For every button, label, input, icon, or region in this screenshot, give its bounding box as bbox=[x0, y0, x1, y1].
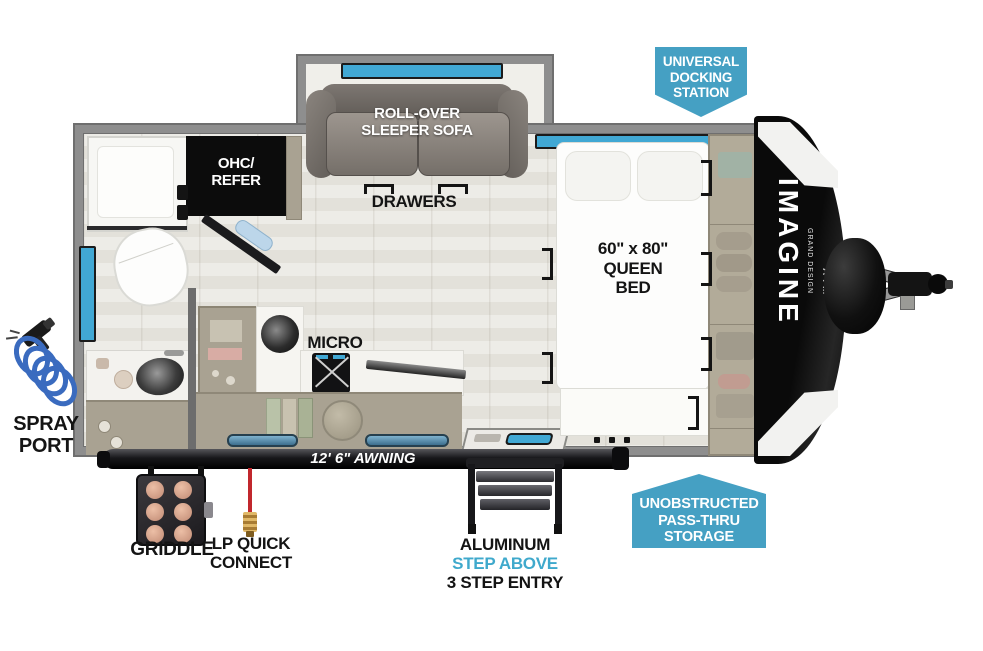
step-tread-2 bbox=[478, 485, 552, 496]
rv-floorplan-diagram: ROLL-OVER SLEEPER SOFA DRAWERS OHC/ REFE… bbox=[0, 0, 983, 651]
washer bbox=[256, 306, 304, 402]
cutting-board-2 bbox=[282, 398, 297, 438]
step-material-label: ALUMINUM bbox=[430, 536, 580, 555]
pantry-dot-2 bbox=[226, 376, 235, 385]
drawers-label: DRAWERS bbox=[364, 193, 464, 212]
vanity-knob-1 bbox=[98, 420, 111, 433]
sofa-label: ROLL-OVER SLEEPER SOFA bbox=[314, 106, 520, 139]
step-tread-1 bbox=[476, 471, 554, 482]
steps-foot-right bbox=[554, 524, 562, 534]
queen-bed: 60" x 80" QUEEN BED bbox=[556, 142, 710, 390]
toilet-seam bbox=[119, 243, 174, 264]
refer-hinge-bottom bbox=[177, 205, 188, 220]
pillow-left bbox=[565, 151, 631, 201]
steps-rail-left bbox=[468, 464, 475, 526]
cutting-board-3 bbox=[298, 398, 313, 438]
brand-manufacturer-text: GRAND DESIGN bbox=[806, 228, 813, 324]
awning-endcap-right bbox=[612, 447, 629, 470]
spray-port-icon bbox=[4, 316, 90, 414]
spray-port-label: SPRAY PORT bbox=[0, 413, 92, 457]
griddle-burner-4 bbox=[174, 503, 192, 521]
wardrobe-shoes-red bbox=[718, 374, 750, 389]
wardrobe-shelf-2 bbox=[710, 324, 760, 325]
wardrobe-shoes-3 bbox=[716, 276, 752, 292]
kitchen-sink bbox=[322, 400, 363, 441]
step-entry-label: 3 STEP ENTRY bbox=[430, 574, 580, 593]
griddle-side-tab bbox=[204, 502, 213, 518]
wardrobe-shoes-1 bbox=[716, 232, 752, 250]
floor-dot-2 bbox=[609, 437, 615, 443]
vanity-bowl bbox=[114, 370, 133, 389]
wardrobe-bin bbox=[716, 332, 754, 360]
underbed-drawer-handle bbox=[688, 396, 699, 430]
wardrobe-handle-3 bbox=[701, 337, 712, 371]
pantry-screen bbox=[210, 320, 242, 342]
entry-door-panel bbox=[474, 434, 502, 442]
wardrobe-mat bbox=[718, 152, 752, 178]
stove-accent-2 bbox=[333, 355, 345, 359]
wardrobe-handle-2 bbox=[701, 252, 712, 286]
washer-door bbox=[261, 315, 299, 353]
refer-hinge-top bbox=[177, 185, 188, 200]
lp-quick-connect-label: LP QUICK CONNECT bbox=[196, 535, 306, 572]
vanity-faucet bbox=[164, 350, 184, 356]
entry-door-window bbox=[505, 433, 554, 445]
wardrobe-bag bbox=[716, 394, 754, 418]
hitch-coupler bbox=[888, 272, 932, 296]
pantry-dot-1 bbox=[212, 370, 219, 377]
pantry-pink-panel bbox=[208, 348, 242, 360]
wardrobe-shoes-2 bbox=[716, 254, 752, 272]
pass-thru-storage-badge: UNOBSTRUCTED PASS-THRU STORAGE bbox=[632, 474, 766, 548]
shower-pan bbox=[97, 146, 174, 218]
cabinet-glass-insert-1 bbox=[227, 434, 298, 447]
refer-side-panel bbox=[286, 136, 302, 220]
docking-station-badge: UNIVERSAL DOCKING STATION bbox=[655, 47, 747, 117]
vanity-soap-dish bbox=[96, 358, 109, 369]
cabinet-glass-insert-2 bbox=[365, 434, 449, 447]
ohc-refer-label: OHC/ REFER bbox=[186, 156, 286, 189]
lp-line bbox=[248, 468, 252, 514]
brand-model-text: IMAGINE bbox=[772, 178, 804, 378]
steps-rail-right bbox=[555, 464, 562, 526]
wardrobe-handle-1 bbox=[701, 160, 712, 196]
vanity-knob-2 bbox=[110, 436, 123, 449]
griddle-burner-3 bbox=[146, 503, 164, 521]
bath-kitchen-wall bbox=[188, 288, 196, 455]
cutting-board-1 bbox=[266, 398, 281, 438]
floor-dot-3 bbox=[624, 437, 630, 443]
propane-cover bbox=[824, 238, 886, 334]
lp-connector bbox=[243, 512, 257, 532]
hitch-coupler-tip bbox=[945, 280, 953, 289]
shower bbox=[87, 136, 188, 232]
bed-handle-upper bbox=[542, 248, 553, 280]
sleeper-sofa: ROLL-OVER SLEEPER SOFA bbox=[314, 84, 520, 190]
pillow-right bbox=[637, 151, 703, 201]
step-tread-3 bbox=[480, 499, 550, 510]
griddle-burner-2 bbox=[174, 481, 192, 499]
floor-dot-1 bbox=[594, 437, 600, 443]
steps-top-rail bbox=[466, 458, 564, 468]
step-feature-label: STEP ABOVE bbox=[430, 555, 580, 574]
awning-endcap-left bbox=[97, 451, 110, 468]
stove bbox=[312, 353, 350, 393]
entry-steps bbox=[466, 458, 564, 534]
slideout-window bbox=[341, 63, 503, 79]
bed-label: 60" x 80" QUEEN BED bbox=[563, 239, 703, 298]
vanity-cabinet bbox=[86, 400, 190, 455]
griddle-burner-1 bbox=[146, 481, 164, 499]
wardrobe-shelf-1 bbox=[710, 224, 760, 225]
steps-foot-left bbox=[468, 524, 476, 534]
wardrobe-shelf-3 bbox=[710, 428, 760, 429]
bed-handle-lower bbox=[542, 352, 553, 384]
